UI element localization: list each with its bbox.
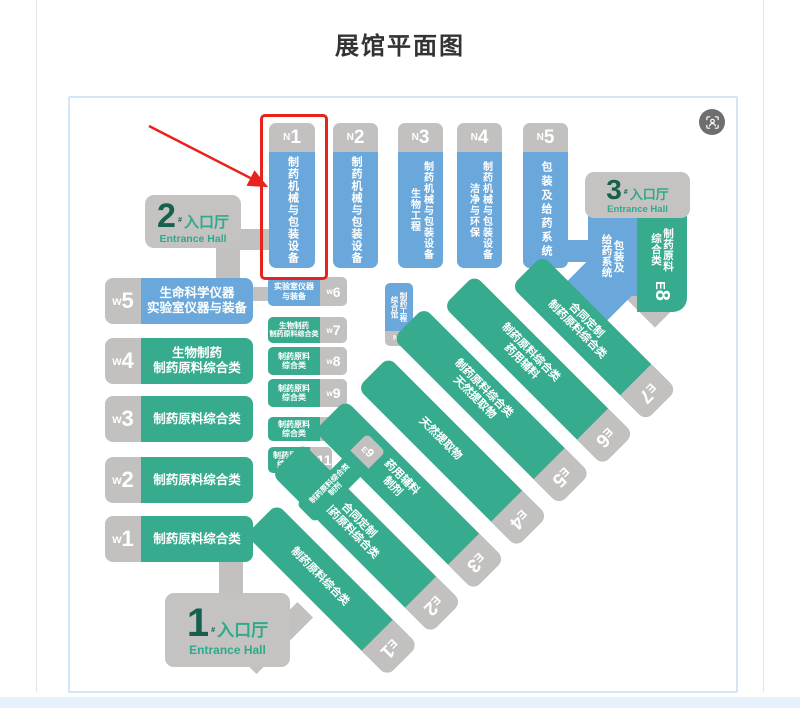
entrance-2-cn-label: 入口厅 [184,211,229,232]
hall-e8-packaging-section: 包装及给药系统 [588,216,637,296]
page-title: 展馆平面图 [0,26,800,61]
entrance-hall-2: 2#入口厅 Entrance Hall [145,195,241,248]
page-left-border [36,0,37,692]
hall-w9: 制药原料综合类 w9 [268,379,347,407]
hall-w3: w3 制药原料综合类 [105,396,253,442]
scan-person-icon [704,114,721,131]
hall-w10-body: 制药原料综合类 [268,417,320,441]
hall-w5-prefix: w [112,294,121,308]
entrance-1-hash: # [211,625,215,634]
hall-n5-prefix: N [537,132,544,143]
hall-w1-prefix: w [112,532,121,546]
entrance-hall-1: 1#入口厅 Entrance Hall [165,593,290,667]
entrance-1-en-label: Entrance Hall [189,643,266,657]
hall-n5-num: 5 [544,128,555,147]
hall-e8-blue-text-2: 给药系统 [601,234,613,278]
hall-w5-num: 5 [122,290,134,312]
hall-w6-num: 6 [333,285,341,299]
hall-w5-body: 生命科学仪器实验室仪器与装备 [141,278,253,324]
hall-w4: w4 生物制药制药原料综合类 [105,338,253,384]
hall-n4-prefix: N [471,132,478,143]
entrance-1-number: 1 [187,603,209,643]
hall-e8-green-text-1: 制药原料 [662,228,674,272]
entrance-2-en-label: Entrance Hall [159,233,226,245]
hall-w6-text-2: 与装备 [282,292,306,302]
hall-n3-text-1: 制药机械与包装设备 [421,161,434,260]
hall-w2-prefix: w [112,473,121,487]
hall-e8-num: 8 [652,289,672,300]
page-right-border [763,0,764,692]
hall-w8-label: w8 [320,347,347,375]
hall-w6-label: w6 [320,277,347,306]
hall-w6-body: 实验室仪器与装备 [268,277,320,306]
hall-w7: 生物制药制药原料综合类 w7 [268,317,347,343]
hall-w1-label: w1 [105,516,141,562]
hall-w9-num: 9 [333,386,341,400]
hall-w10-text-1: 制药原料 [278,420,310,430]
hall-w5-text-2: 实验室仪器与装备 [147,301,247,316]
entrance-2-hash: # [178,215,182,224]
hall-n5-body: 包装及给药系统 [523,152,568,268]
page-root: 展馆平面图 N1 制药机械与包装设备 N2 制药机械与包装设备 N3 制药机械与… [0,0,800,708]
hall-w7-num: 7 [333,323,341,337]
hall-n2-num: 2 [354,128,365,147]
entrance-1-cn-label: 入口厅 [217,616,268,641]
hall-e8-green-text-2: 综合类 [650,228,662,272]
hall-w8-text-1: 制药原料 [278,352,310,362]
hall-n2-text: 制药机械与包装设备 [349,156,362,264]
hall-w1-text: 制药原料综合类 [153,532,241,547]
hall-w8-body: 制药原料综合类 [268,347,320,375]
hall-n4-num: 4 [478,128,489,147]
entrance-3-cn-label: 入口厅 [630,184,669,203]
hall-e8-materials-section: 制药原料综合类 E8 [637,216,687,312]
hall-w2-text: 制药原料综合类 [153,473,241,488]
hall-n4-label: N4 [457,123,502,152]
hall-n4-body: 制药机械与包装设备洁净与环保 [457,152,502,268]
hall-n6-text-2: 综合馆 [390,292,399,322]
hall-n3-body: 制药机械与包装设备生物工程 [398,152,443,268]
entrance-3-hash: # [624,187,628,196]
hall-w4-label: w4 [105,338,141,384]
hall-e8-prefix: E [653,281,668,290]
entrance-hall-3: 3#入口厅 Entrance Hall [585,172,690,218]
hall-n6-text-1: 制药工程 [399,292,408,322]
hall-n4-text-2: 洁净与环保 [467,161,480,260]
hall-n3-num: 3 [419,128,430,147]
hall-n5: N5 包装及给药系统 [523,123,568,268]
hall-n4: N4 制药机械与包装设备洁净与环保 [457,123,502,268]
hall-w4-body: 生物制药制药原料综合类 [141,338,253,384]
hall-n2-label: N2 [333,123,378,152]
hall-n3-label: N3 [398,123,443,152]
hall-w4-text-1: 生物制药 [172,346,222,361]
corridor-w1-entrance1 [219,561,243,595]
hall-w5-label: w5 [105,278,141,324]
hall-e8-label: E8 [652,281,672,301]
hall-w3-num: 3 [122,408,134,430]
page-footer-strip [0,697,800,708]
hall-w3-prefix: w [112,412,121,426]
hall-n4-text-1: 制药机械与包装设备 [480,161,493,260]
hall-n3: N3 制药机械与包装设备生物工程 [398,123,443,268]
hall-n3-prefix: N [412,132,419,143]
hall-w9-text-2: 综合类 [282,393,306,403]
hall-w9-text-1: 制药原料 [278,384,310,394]
hall-e8-blue-text-1: 包装及 [613,234,625,278]
hall-w4-num: 4 [122,350,134,372]
hall-n2: N2 制药机械与包装设备 [333,123,378,268]
hall-w5-text-1: 生命科学仪器 [159,286,234,301]
hall-w5: w5 生命科学仪器实验室仪器与装备 [105,278,253,324]
hall-w4-text-2: 制药原料综合类 [153,361,241,376]
entrance-3-en-label: Entrance Hall [607,204,668,215]
hall-w9-body: 制药原料综合类 [268,379,320,407]
hall-n2-body: 制药机械与包装设备 [333,152,378,268]
hall-n5-label: N5 [523,123,568,152]
hall-e8: 包装及给药系统 制药原料综合类 E8 [588,216,687,312]
hall-n3-text-2: 生物工程 [408,161,421,260]
hall-w1-body: 制药原料综合类 [141,516,253,562]
hall-w10-text-2: 综合类 [282,429,306,439]
hall-w2: w2 制药原料综合类 [105,457,253,503]
hall-w7-text-1: 生物制药 [279,321,309,331]
entrance-3-number: 3 [606,176,622,204]
hall-w3-body: 制药原料综合类 [141,396,253,442]
hall-w6: 实验室仪器与装备 w6 [268,277,347,306]
hall-w7-text-2: 制药原料综合类 [270,330,319,340]
n1-highlight-box [260,114,328,280]
hall-w7-label: w7 [320,317,347,343]
hall-w3-text: 制药原料综合类 [153,412,241,427]
hall-w1: w1 制药原料综合类 [105,516,253,562]
hall-w7-body: 生物制药制药原料综合类 [268,317,320,343]
hall-w8-text-2: 综合类 [282,361,306,371]
hall-n2-prefix: N [347,132,354,143]
hall-w8: 制药原料综合类 w8 [268,347,347,375]
hall-w4-prefix: w [112,354,121,368]
entrance-2-number: 2 [157,199,176,233]
hall-w1-num: 1 [122,528,134,550]
hall-n5-text: 包装及给药系统 [539,161,552,259]
hall-w3-label: w3 [105,396,141,442]
hall-w2-body: 制药原料综合类 [141,457,253,503]
scan-image-button[interactable] [699,109,725,135]
hall-w2-label: w2 [105,457,141,503]
hall-w2-num: 2 [122,469,134,491]
hall-w6-text-1: 实验室仪器 [274,282,314,292]
hall-w8-num: 8 [333,354,341,368]
